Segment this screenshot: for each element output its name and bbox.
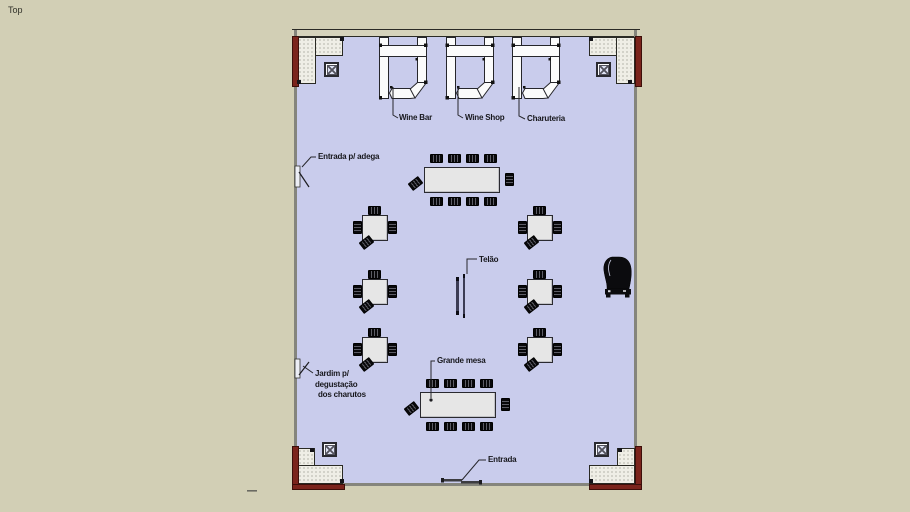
wall-left (294, 30, 297, 486)
charuteria-counter[interactable] (512, 38, 561, 100)
chair (448, 197, 461, 206)
chair (368, 206, 381, 215)
chair (388, 343, 397, 356)
planter-arm (616, 37, 635, 84)
planter-red-edge (292, 484, 345, 490)
square-table[interactable] (352, 205, 398, 251)
chair (518, 343, 527, 356)
screen-line (463, 274, 466, 318)
chair (518, 285, 527, 298)
label-jardim-line2: degustação (315, 380, 366, 391)
corner-tick (589, 479, 593, 483)
chair (553, 343, 562, 356)
chair (430, 154, 443, 163)
column-x-mark (327, 65, 337, 75)
table-surface (420, 392, 496, 418)
planter-arm (589, 465, 635, 484)
wine-bar-counter[interactable] (379, 38, 428, 100)
label-jardim-line3: dos charutos (315, 390, 366, 401)
chair (444, 379, 457, 388)
grande-mesa-table[interactable] (404, 377, 512, 433)
planter-red-edge (635, 36, 642, 87)
chair (533, 270, 546, 279)
chair (388, 221, 397, 234)
corner-tick (618, 448, 622, 452)
column-x-mark (325, 445, 335, 455)
chair (404, 401, 420, 416)
chair (368, 328, 381, 337)
square-table[interactable] (517, 205, 563, 251)
planter-red-edge (589, 484, 642, 490)
column-x-mark (597, 445, 607, 455)
chair (501, 398, 510, 411)
grand-piano[interactable] (602, 256, 634, 302)
chair (388, 285, 397, 298)
label-charuteria: Charuteria (527, 114, 565, 123)
chair (426, 379, 439, 388)
square-table[interactable] (352, 269, 398, 315)
column-bottom-right[interactable] (594, 442, 609, 457)
column-top-left[interactable] (324, 62, 339, 77)
wall-top (292, 29, 640, 37)
chair (430, 197, 443, 206)
corner-tick (340, 479, 344, 483)
corner-tick (297, 80, 301, 84)
chair (518, 221, 527, 234)
long-table-top[interactable] (408, 152, 516, 208)
chair (353, 285, 362, 298)
chair (408, 176, 424, 191)
square-table[interactable] (352, 327, 398, 373)
chair (553, 221, 562, 234)
chair (484, 154, 497, 163)
table-surface (424, 167, 500, 193)
corner-tick (340, 37, 344, 41)
axis-origin-mark (247, 490, 257, 492)
chair (462, 379, 475, 388)
corner-tick (310, 448, 314, 452)
bar-counters[interactable] (379, 37, 561, 101)
chair (480, 422, 493, 431)
column-bottom-left[interactable] (322, 442, 337, 457)
chair (553, 285, 562, 298)
column-x-mark (599, 65, 609, 75)
label-telao: Telão (479, 255, 498, 264)
sketchup-viewport[interactable]: Top (0, 0, 910, 512)
wall-right (634, 30, 637, 486)
view-name-label: Top (8, 5, 23, 15)
chair (448, 154, 461, 163)
label-wine-bar: Wine Bar (399, 113, 432, 122)
label-entrada: Entrada (488, 455, 516, 464)
chair (466, 154, 479, 163)
chair (505, 173, 514, 186)
chair (480, 379, 493, 388)
label-jardim: Jardim p/ degustação dos charutos (315, 369, 366, 401)
chair (462, 422, 475, 431)
chair (466, 197, 479, 206)
screen-line (456, 277, 459, 315)
planter-arm (297, 37, 316, 84)
chair (444, 422, 457, 431)
corner-tick (589, 37, 593, 41)
wine-shop-counter[interactable] (446, 38, 495, 100)
chair (426, 422, 439, 431)
label-wine-shop: Wine Shop (465, 113, 504, 122)
column-top-right[interactable] (596, 62, 611, 77)
corner-tick (628, 80, 632, 84)
chair (368, 270, 381, 279)
chair (484, 197, 497, 206)
label-grande-mesa: Grande mesa (437, 356, 486, 365)
label-entrada-adega: Entrada p/ adega (318, 152, 379, 161)
chair (533, 206, 546, 215)
wall-bottom (294, 483, 638, 486)
chair (533, 328, 546, 337)
planter-arm (297, 465, 343, 484)
square-table[interactable] (517, 269, 563, 315)
chair (353, 221, 362, 234)
chair (353, 343, 362, 356)
square-table[interactable] (517, 327, 563, 373)
label-jardim-line1: Jardim p/ (315, 369, 366, 380)
